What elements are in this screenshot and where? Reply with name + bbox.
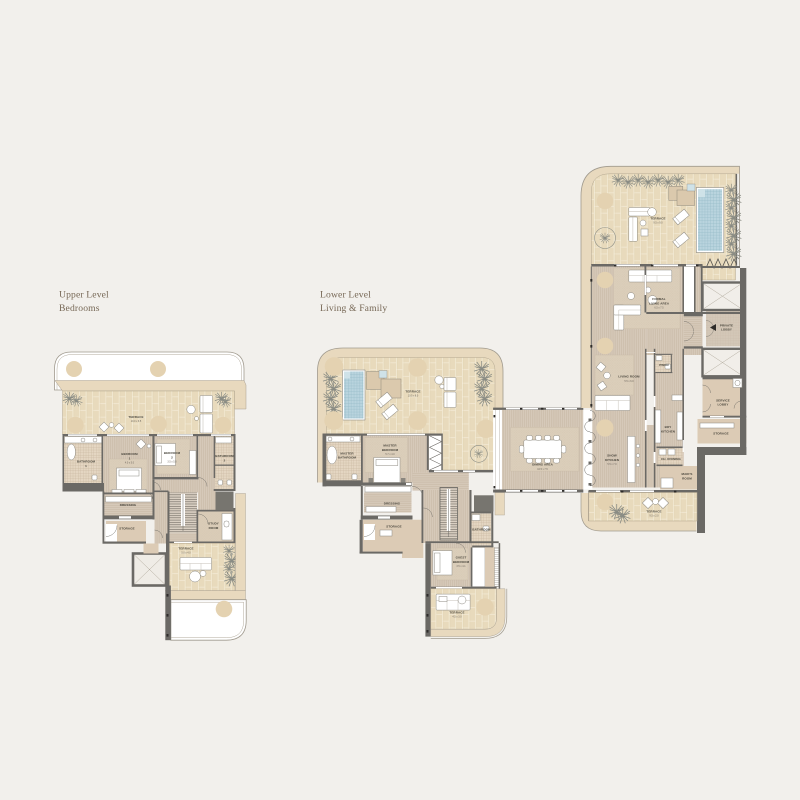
svg-text:TERRACE: TERRACE xyxy=(405,390,420,394)
svg-text:LIVING AREA: LIVING AREA xyxy=(649,301,670,305)
svg-text:DRESSING: DRESSING xyxy=(384,502,401,506)
svg-text:TERRACE: TERRACE xyxy=(646,510,661,514)
svg-text:5.0 x 4.0: 5.0 x 4.0 xyxy=(181,552,191,555)
svg-text:PWDR: PWDR xyxy=(659,363,669,367)
svg-text:DINING AREA: DINING AREA xyxy=(532,463,554,467)
svg-text:BATHROOM: BATHROOM xyxy=(472,528,491,532)
svg-text:5.7 x 4.0: 5.7 x 4.0 xyxy=(385,453,395,456)
svg-text:KITCHEN: KITCHEN xyxy=(661,429,675,433)
svg-text:3.5 x 4.1: 3.5 x 4.1 xyxy=(456,565,466,568)
svg-text:LOBBY: LOBBY xyxy=(718,403,729,407)
svg-text:10.5 x 8.0: 10.5 x 8.0 xyxy=(408,395,419,398)
svg-text:TERRACE: TERRACE xyxy=(178,547,193,551)
svg-text:TERRACE: TERRACE xyxy=(449,611,464,615)
svg-text:Upper Level: Upper Level xyxy=(59,290,109,301)
svg-text:3.5 x 5.0: 3.5 x 5.0 xyxy=(167,461,177,464)
svg-text:DRESSING: DRESSING xyxy=(120,503,137,507)
svg-text:BEDROOM: BEDROOM xyxy=(453,560,470,564)
svg-text:CH. IRONING: CH. IRONING xyxy=(661,457,681,461)
svg-text:ROOM: ROOM xyxy=(682,476,692,480)
svg-text:4.0 x 5.0: 4.0 x 5.0 xyxy=(125,462,135,465)
svg-text:Lower Level: Lower Level xyxy=(320,290,371,301)
svg-text:LOBBY: LOBBY xyxy=(721,328,732,332)
svg-text:9.5 x 2.0: 9.5 x 2.0 xyxy=(649,515,659,518)
svg-text:10.5 x 7.5: 10.5 x 7.5 xyxy=(537,468,548,471)
svg-text:10.0 x 3.5: 10.0 x 3.5 xyxy=(131,420,142,423)
svg-text:6.5 x 7.5: 6.5 x 7.5 xyxy=(654,307,664,310)
svg-text:TERRACE: TERRACE xyxy=(128,415,143,419)
svg-text:BATHROOM: BATHROOM xyxy=(338,456,357,460)
svg-text:KITCHEN: KITCHEN xyxy=(605,458,619,462)
svg-text:5.5 x 6.0: 5.5 x 6.0 xyxy=(624,380,634,383)
svg-text:STORAGE: STORAGE xyxy=(386,525,401,529)
svg-text:ROOM: ROOM xyxy=(209,526,219,530)
svg-text:LIVING ROOM: LIVING ROOM xyxy=(618,375,640,379)
svg-text:STORAGE: STORAGE xyxy=(713,432,728,436)
svg-text:TERRACE: TERRACE xyxy=(650,217,665,221)
svg-text:1: 1 xyxy=(85,464,87,468)
svg-text:BEDROOM: BEDROOM xyxy=(382,448,399,452)
svg-text:9.5 x 9.0: 9.5 x 9.0 xyxy=(653,222,663,225)
svg-text:4.5 x 3.0: 4.5 x 3.0 xyxy=(452,616,462,619)
svg-text:2: 2 xyxy=(224,458,226,462)
svg-text:1: 1 xyxy=(129,456,131,460)
svg-text:STORAGE: STORAGE xyxy=(119,527,134,531)
svg-text:Bedrooms: Bedrooms xyxy=(59,303,100,314)
svg-text:5.5 x 7.0: 5.5 x 7.0 xyxy=(607,463,617,466)
svg-text:2: 2 xyxy=(171,455,173,459)
svg-text:Living & Family: Living & Family xyxy=(320,303,387,314)
